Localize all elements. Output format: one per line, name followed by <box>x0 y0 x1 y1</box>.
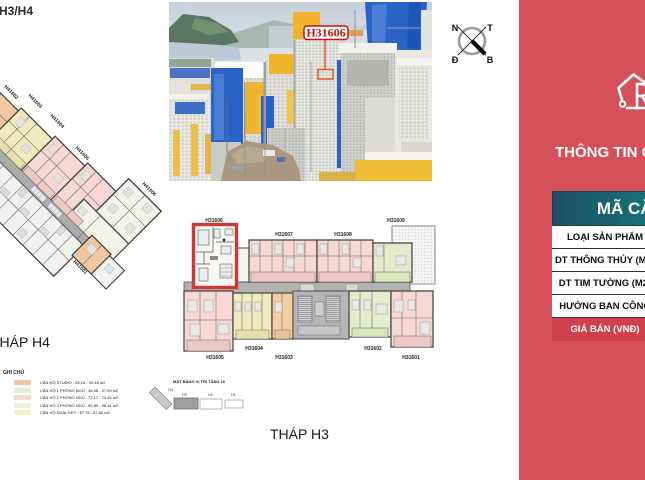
svg-text:H31605: H31605 <box>206 355 224 361</box>
svg-text:H31608: H31608 <box>334 232 352 238</box>
svg-text:MẶT BẰNG VỊ TRÍ TẦNG 16: MẶT BẰNG VỊ TRÍ TẦNG 16 <box>173 379 226 384</box>
svg-text:H3: H3 <box>182 393 187 397</box>
svg-text:H31606: H31606 <box>306 26 345 40</box>
svg-text:H31603: H31603 <box>275 355 293 361</box>
svg-text:B: B <box>487 55 494 64</box>
svg-text:H31607: H31607 <box>275 232 293 238</box>
svg-text:T: T <box>487 23 493 33</box>
svg-text:H4: H4 <box>168 388 173 392</box>
svg-text:Đ: Đ <box>452 55 459 64</box>
svg-text:H31601: H31601 <box>402 355 420 361</box>
svg-text:H31602: H31602 <box>364 346 382 352</box>
svg-text:H41604: H41604 <box>49 113 66 130</box>
svg-text:H2: H2 <box>208 393 213 397</box>
svg-text:H31606: H31606 <box>205 218 223 224</box>
svg-text:N: N <box>452 23 459 33</box>
svg-text:H41603: H41603 <box>27 93 44 110</box>
svg-text:H31609: H31609 <box>387 218 405 224</box>
svg-text:H31604: H31604 <box>245 346 263 352</box>
svg-text:H1: H1 <box>231 393 236 397</box>
